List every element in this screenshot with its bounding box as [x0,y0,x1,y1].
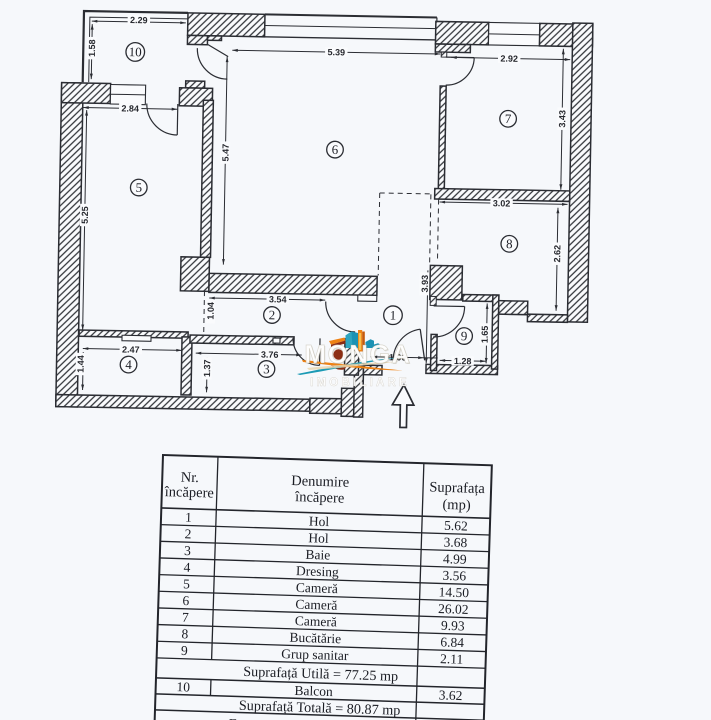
svg-text:Cameră: Cameră [296,580,338,596]
svg-text:5.47: 5.47 [220,144,230,162]
svg-text:10: 10 [129,44,142,59]
svg-text:(mp): (mp) [442,497,471,514]
svg-text:2.29: 2.29 [130,15,148,25]
svg-text:14.50: 14.50 [438,584,469,600]
svg-text:6.84: 6.84 [440,634,464,650]
svg-text:Denumire: Denumire [291,473,349,491]
svg-text:încăpere: încăpere [294,489,345,507]
svg-text:9: 9 [461,328,468,343]
svg-text:6: 6 [182,593,189,608]
svg-text:Baie: Baie [305,547,330,563]
svg-text:2.62: 2.62 [552,245,562,263]
svg-text:4: 4 [183,560,190,575]
svg-text:3: 3 [184,543,191,558]
svg-text:6: 6 [332,142,339,157]
svg-text:Cameră: Cameră [295,597,337,613]
svg-text:7: 7 [505,111,512,126]
svg-text:3.76: 3.76 [261,350,279,360]
svg-text:8: 8 [181,626,188,641]
svg-text:1.65: 1.65 [480,326,490,344]
svg-text:1.28: 1.28 [454,356,472,366]
svg-text:10: 10 [176,679,190,694]
svg-text:3.62: 3.62 [439,687,463,703]
svg-text:1.37: 1.37 [202,359,212,377]
svg-text:Hol: Hol [309,514,330,530]
svg-text:3.93: 3.93 [420,275,430,293]
svg-text:9.93: 9.93 [441,618,465,634]
svg-text:2.84: 2.84 [121,103,139,113]
svg-text:4: 4 [125,357,132,372]
svg-text:IMOBILIARE: IMOBILIARE [310,377,410,389]
svg-text:F: F [228,716,236,720]
svg-text:3.54: 3.54 [269,294,287,304]
svg-text:Nr.: Nr. [180,470,199,487]
svg-text:3.68: 3.68 [443,534,467,550]
svg-text:3.02: 3.02 [493,198,511,208]
svg-text:Grup sanitar: Grup sanitar [281,646,349,663]
svg-text:5: 5 [135,180,142,195]
svg-text:1.44: 1.44 [76,355,86,373]
svg-text:Balcon: Balcon [294,683,333,699]
svg-text:4.99: 4.99 [443,551,467,567]
svg-text:3.43: 3.43 [557,110,567,128]
svg-text:MONGA: MONGA [304,339,411,369]
svg-text:încăpere: încăpere [164,484,215,502]
svg-text:1: 1 [390,307,397,322]
svg-text:2.11: 2.11 [440,651,464,667]
svg-text:2: 2 [269,307,276,322]
svg-text:Hol: Hol [308,530,329,546]
svg-text:1.58: 1.58 [87,39,97,57]
svg-text:9: 9 [181,643,188,658]
svg-text:Bucătărie: Bucătărie [289,630,341,647]
svg-text:1.04: 1.04 [206,302,216,320]
svg-text:1: 1 [185,510,192,525]
svg-text:5.39: 5.39 [327,47,345,57]
svg-text:2.92: 2.92 [500,54,518,64]
svg-text:Suprafața: Suprafața [429,479,486,497]
svg-text:26.02: 26.02 [438,601,469,617]
svg-text:Dresing: Dresing [296,563,339,579]
svg-text:2: 2 [184,526,191,541]
svg-text:5: 5 [183,576,190,591]
svg-text:3.56: 3.56 [442,568,466,584]
svg-text:2.47: 2.47 [122,344,140,354]
svg-text:8: 8 [506,236,513,251]
svg-text:5.62: 5.62 [444,518,468,534]
svg-text:7: 7 [182,610,189,625]
svg-text:3: 3 [263,361,270,376]
svg-text:Cameră: Cameră [295,613,337,629]
svg-text:5.25: 5.25 [80,206,90,224]
